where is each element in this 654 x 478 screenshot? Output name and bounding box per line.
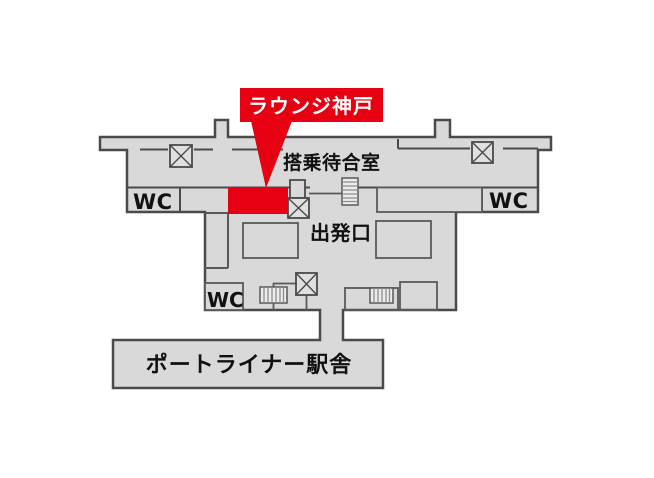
stairs-lower-right-icon bbox=[370, 288, 393, 303]
band-room-box bbox=[377, 188, 482, 213]
wc-upper-right-label: WC bbox=[489, 189, 529, 213]
boarding-room-label: 搭乗待合室 bbox=[283, 151, 381, 174]
wc-lower-label: WC bbox=[207, 288, 244, 312]
gate-door-box bbox=[290, 180, 305, 198]
elevator-lower-icon bbox=[296, 273, 317, 295]
elevator-gate-icon bbox=[288, 198, 309, 218]
stairs-lower-left-icon bbox=[260, 287, 287, 303]
callout-label: ラウンジ神戸 bbox=[248, 94, 374, 118]
airport-floor-map: ラウンジ神戸 搭乗待合室 出発口 WC WC WC ポートライナー駅舎 bbox=[0, 0, 654, 478]
elevator-top-right-icon bbox=[472, 142, 493, 163]
floor-map-svg: ラウンジ神戸 搭乗待合室 出発口 WC WC WC ポートライナー駅舎 bbox=[0, 0, 654, 478]
wc-upper-left-label: WC bbox=[133, 190, 173, 214]
station-label: ポートライナー駅舎 bbox=[146, 352, 353, 378]
departure-gate-label: 出発口 bbox=[310, 221, 372, 245]
lounge-location-highlight bbox=[228, 188, 288, 214]
elevator-top-left-icon bbox=[170, 145, 192, 167]
stairs-upper-icon bbox=[342, 178, 358, 205]
